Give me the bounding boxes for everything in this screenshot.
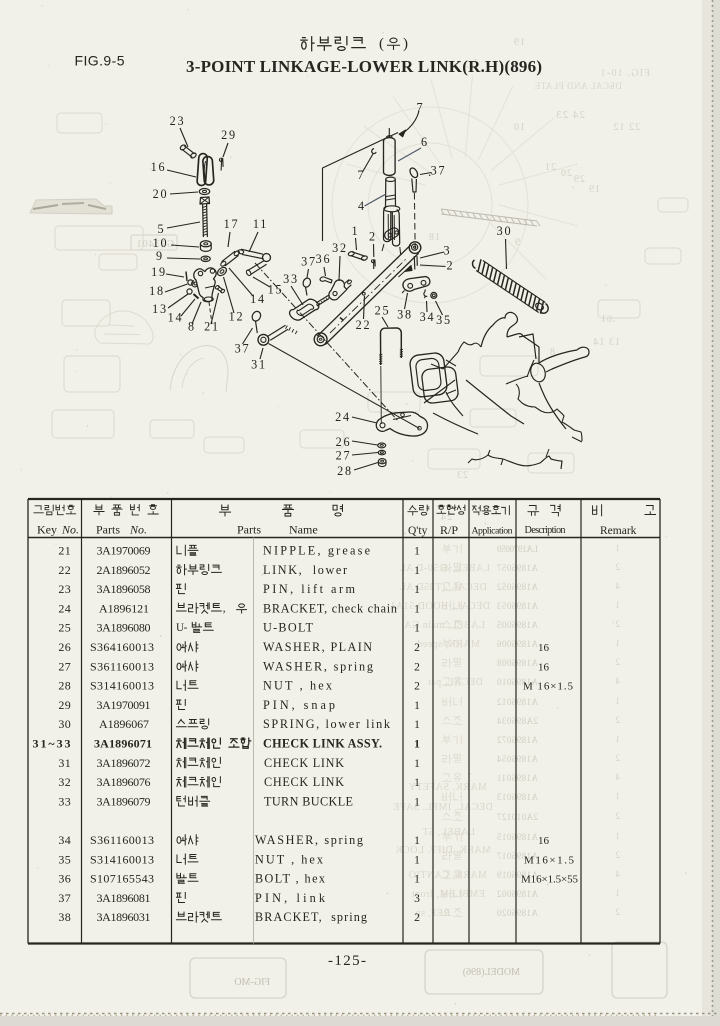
svg-text:2: 2 <box>616 850 621 860</box>
svg-text:18: 18 <box>149 284 165 298</box>
svg-text:S361160013: S361160013 <box>90 659 154 673</box>
svg-text:13 14: 13 14 <box>593 337 621 348</box>
svg-text:Parts: Parts <box>96 523 120 537</box>
svg-text:FIG-MO: FIG-MO <box>234 977 270 988</box>
svg-text:16: 16 <box>151 160 167 174</box>
svg-text:26: 26 <box>336 435 352 449</box>
svg-text:2: 2 <box>414 642 420 654</box>
svg-text:2: 2 <box>414 661 420 673</box>
svg-text:WASHER, PLAIN: WASHER, PLAIN <box>263 640 372 654</box>
svg-text:31~33: 31~33 <box>33 737 71 751</box>
svg-text:6: 6 <box>421 135 429 149</box>
svg-text:2: 2 <box>369 230 377 244</box>
svg-text:U-BOLT: U-BOLT <box>263 621 314 635</box>
svg-text:35: 35 <box>58 852 71 866</box>
svg-text:2A010127: 2A010127 <box>497 812 539 822</box>
svg-text:38: 38 <box>397 308 413 322</box>
svg-text:Name: Name <box>289 523 318 537</box>
svg-text:Key: Key <box>37 523 57 537</box>
svg-text:2A896034: 2A896034 <box>497 716 539 726</box>
svg-text:23: 23 <box>58 582 71 596</box>
svg-text:3A1896072: 3A1896072 <box>97 756 151 770</box>
svg-text:-: - <box>184 622 188 634</box>
svg-text:EMBLEM, front: EMBLEM, front <box>411 889 485 900</box>
svg-text:29: 29 <box>573 174 585 185</box>
svg-text:A1896052: A1896052 <box>497 582 538 592</box>
svg-text:NUT , hex: NUT , hex <box>255 852 323 866</box>
svg-text:14: 14 <box>250 292 266 306</box>
svg-text:2: 2 <box>447 259 455 273</box>
svg-text:DECAL, IMPL. SAFE: DECAL, IMPL. SAFE <box>393 802 493 813</box>
svg-text:A1896121: A1896121 <box>99 601 149 615</box>
svg-text:A1896054: A1896054 <box>497 754 539 764</box>
svg-text:24: 24 <box>335 410 351 424</box>
svg-text:37: 37 <box>301 255 317 269</box>
svg-text:A1896020: A1896020 <box>497 908 539 918</box>
svg-text:22: 22 <box>356 318 372 332</box>
svg-text:9: 9 <box>514 237 520 248</box>
svg-text:4: 4 <box>615 869 620 879</box>
svg-text:1: 1 <box>414 835 420 847</box>
svg-text:S107165543: S107165543 <box>90 872 154 886</box>
svg-text:33: 33 <box>58 794 71 808</box>
svg-text:10: 10 <box>513 122 525 133</box>
svg-text:3: 3 <box>444 244 452 258</box>
svg-text:2: 2 <box>616 715 621 725</box>
svg-text:8: 8 <box>188 320 196 334</box>
svg-text:No.: No. <box>129 523 147 537</box>
svg-text:27: 27 <box>58 659 71 673</box>
svg-text:3A1896058: 3A1896058 <box>97 582 151 596</box>
svg-text:1: 1 <box>616 888 621 898</box>
svg-text:32: 32 <box>58 775 71 789</box>
svg-text:2: 2 <box>616 811 621 821</box>
svg-text:4: 4 <box>615 676 620 686</box>
svg-text:18: 18 <box>428 232 440 243</box>
svg-text:말: 말 <box>453 657 462 669</box>
svg-text:WASHER, spring: WASHER, spring <box>255 833 363 847</box>
svg-text:MARK, CANTIO: MARK, CANTIO <box>408 870 487 881</box>
svg-text:TURN BUCKLE: TURN BUCKLE <box>264 794 353 808</box>
svg-text:20: 20 <box>153 187 169 201</box>
svg-text:(: ( <box>379 36 384 52</box>
svg-text:A1896072: A1896072 <box>497 735 538 745</box>
svg-text:1: 1 <box>616 734 621 744</box>
svg-text:CHECK LINK: CHECK LINK <box>264 756 344 770</box>
svg-text:Q'ty: Q'ty <box>408 525 428 537</box>
svg-text:CHECK LINK: CHECK LINK <box>264 775 344 789</box>
svg-text:61: 61 <box>600 314 612 325</box>
svg-text:S314160013: S314160013 <box>90 679 154 693</box>
svg-text:DECAL, (T35D AL: DECAL, (T35D AL <box>399 582 487 593</box>
svg-text:12: 12 <box>229 310 245 324</box>
svg-text:29: 29 <box>58 698 71 712</box>
svg-text:1: 1 <box>616 638 621 648</box>
svg-text:3A1896076: 3A1896076 <box>97 775 151 789</box>
svg-text:36: 36 <box>58 872 71 886</box>
svg-text:1: 1 <box>414 546 420 558</box>
svg-text:2A1896052: 2A1896052 <box>97 563 151 577</box>
svg-text:LABEL, 5T: LABEL, 5T <box>422 827 475 838</box>
svg-text:3A1970091: 3A1970091 <box>97 698 151 712</box>
svg-text:,: , <box>223 603 226 615</box>
svg-text:MARK, DIFF. LOCK: MARK, DIFF. LOCK <box>395 845 491 856</box>
svg-text:4: 4 <box>615 581 620 591</box>
svg-text:25: 25 <box>375 304 391 318</box>
svg-text:22: 22 <box>58 563 71 577</box>
svg-text:23: 23 <box>170 114 186 128</box>
svg-text:1: 1 <box>414 623 420 635</box>
svg-text:31: 31 <box>251 358 267 372</box>
svg-text:36: 36 <box>316 252 332 266</box>
svg-text:3: 3 <box>414 893 420 905</box>
svg-text:WASHER, spring: WASHER, spring <box>263 659 373 673</box>
svg-text:22 12: 22 12 <box>613 122 641 133</box>
svg-text:R/P: R/P <box>440 523 458 537</box>
svg-text:25: 25 <box>58 621 71 635</box>
svg-text:32: 32 <box>332 241 348 255</box>
svg-text:): ) <box>403 36 408 52</box>
svg-text:10: 10 <box>153 236 169 250</box>
svg-text:SPRING, lower link: SPRING, lower link <box>263 717 391 731</box>
svg-text:37: 37 <box>58 891 71 905</box>
svg-text:1: 1 <box>414 777 420 789</box>
svg-text:A1896006: A1896006 <box>497 639 539 649</box>
svg-text:No.: No. <box>61 523 79 537</box>
svg-text:19: 19 <box>588 184 600 195</box>
svg-text:M16×1.5: M16×1.5 <box>524 854 575 866</box>
svg-text:A1896015: A1896015 <box>497 832 539 842</box>
svg-text:16: 16 <box>538 642 550 654</box>
svg-text:1: 1 <box>414 854 420 866</box>
svg-text:1: 1 <box>616 600 621 610</box>
svg-text:A1896012: A1896012 <box>497 697 538 707</box>
svg-text:1: 1 <box>616 543 621 553</box>
svg-text:14: 14 <box>168 311 184 325</box>
svg-text:38: 38 <box>58 910 71 924</box>
svg-text:11: 11 <box>253 217 268 231</box>
svg-text:20: 20 <box>560 168 572 179</box>
svg-text:37: 37 <box>431 164 447 178</box>
svg-text:28: 28 <box>337 464 353 478</box>
svg-text:17: 17 <box>224 217 240 231</box>
svg-text:37: 37 <box>235 342 251 356</box>
svg-text:21: 21 <box>204 320 220 334</box>
svg-text:Parts: Parts <box>237 523 261 537</box>
svg-text:3A1896080: 3A1896080 <box>97 621 151 635</box>
svg-text:2: 2 <box>616 562 621 572</box>
svg-text:29: 29 <box>221 128 237 142</box>
svg-text:말: 말 <box>453 753 462 765</box>
svg-text:BRACKET, check chain: BRACKET, check chain <box>263 601 397 615</box>
svg-text:2: 2 <box>616 753 621 763</box>
svg-text:7: 7 <box>417 101 425 115</box>
svg-text:S361160013: S361160013 <box>90 833 154 847</box>
svg-text:1: 1 <box>414 700 420 712</box>
svg-text:2: 2 <box>616 657 621 667</box>
svg-text:35: 35 <box>436 313 452 327</box>
svg-text:26: 26 <box>58 640 71 654</box>
svg-text:CHECK LINK ASSY.: CHECK LINK ASSY. <box>263 737 382 751</box>
svg-text:16: 16 <box>538 835 550 847</box>
svg-text:2: 2 <box>616 907 621 917</box>
svg-text:A1896057: A1896057 <box>497 563 539 573</box>
svg-text:3-POINT LINKAGE-LOWER LINK(R.H: 3-POINT LINKAGE-LOWER LINK(R.H)(896) <box>186 57 542 76</box>
svg-text:1: 1 <box>414 584 420 596</box>
svg-text:21: 21 <box>544 162 556 173</box>
svg-text:Description: Description <box>525 525 566 536</box>
svg-text:3A1970069: 3A1970069 <box>97 544 151 558</box>
svg-text:28: 28 <box>58 679 71 693</box>
svg-text:23: 23 <box>456 470 468 481</box>
svg-text:5: 5 <box>158 222 166 236</box>
svg-text:1: 1 <box>616 831 621 841</box>
svg-text:1: 1 <box>414 739 420 751</box>
svg-text:MARK, SAFETY: MARK, SAFETY <box>408 782 487 793</box>
svg-text:DECAL, pat: DECAL, pat <box>427 677 483 688</box>
svg-text:13: 13 <box>152 302 168 316</box>
svg-text:9: 9 <box>156 249 164 263</box>
svg-text:1: 1 <box>352 224 360 238</box>
svg-text:MODEL(896): MODEL(896) <box>463 967 520 978</box>
svg-text:34: 34 <box>420 310 436 324</box>
svg-text:S314160013: S314160013 <box>90 852 154 866</box>
svg-text:1: 1 <box>616 696 621 706</box>
svg-text:M16×1.5×55: M16×1.5×55 <box>521 874 579 886</box>
svg-text:LA1970059: LA1970059 <box>497 544 539 554</box>
svg-text:A1896013: A1896013 <box>497 792 539 802</box>
svg-text:30: 30 <box>58 717 71 731</box>
svg-text:1: 1 <box>616 791 621 801</box>
svg-text:3A1896081: 3A1896081 <box>97 891 151 905</box>
svg-text:2: 2 <box>616 619 621 629</box>
svg-text:1: 1 <box>414 603 420 615</box>
svg-text:3A1896079: 3A1896079 <box>97 794 151 808</box>
svg-text:PIN, snap: PIN, snap <box>263 698 335 712</box>
svg-text:31: 31 <box>58 756 71 770</box>
svg-text:1: 1 <box>414 719 420 731</box>
svg-text:2: 2 <box>414 681 420 693</box>
svg-text:19: 19 <box>513 37 525 48</box>
svg-text:S364160013: S364160013 <box>90 640 154 654</box>
svg-text:BRACKET, spring: BRACKET, spring <box>255 910 367 924</box>
svg-text:MARK, speed: MARK, speed <box>417 639 480 650</box>
svg-text:34: 34 <box>58 833 71 847</box>
svg-text:PIN, link: PIN, link <box>255 891 326 905</box>
svg-text:Remark: Remark <box>600 525 637 537</box>
svg-text:15: 15 <box>268 283 284 297</box>
svg-text:A1896011: A1896011 <box>497 773 538 783</box>
svg-text:A1896067: A1896067 <box>99 717 149 731</box>
svg-text:Application: Application <box>472 526 513 537</box>
svg-text:4: 4 <box>615 772 620 782</box>
svg-text:1: 1 <box>414 565 420 577</box>
svg-text:FIG. 10-1: FIG. 10-1 <box>600 68 650 79</box>
svg-text:FIG.9-5: FIG.9-5 <box>75 53 125 69</box>
svg-text:27: 27 <box>336 449 352 463</box>
svg-text:16: 16 <box>538 661 550 673</box>
svg-text:A1896008: A1896008 <box>497 658 539 668</box>
svg-text:1: 1 <box>414 758 420 770</box>
svg-text:A1896053: A1896053 <box>497 601 539 611</box>
svg-text:2: 2 <box>414 912 420 924</box>
svg-text:24 23: 24 23 <box>555 109 585 121</box>
svg-text:LABEL, 4150-D AL: LABEL, 4150-D AL <box>399 563 490 574</box>
svg-text:7: 7 <box>358 168 366 182</box>
svg-text:3A1896031: 3A1896031 <box>97 910 151 924</box>
svg-text:33: 33 <box>283 272 299 286</box>
svg-text:A1896005: A1896005 <box>497 620 539 630</box>
svg-text:1: 1 <box>414 796 420 808</box>
svg-text:4: 4 <box>358 199 366 213</box>
svg-text:DECAL AND PLATE: DECAL AND PLATE <box>534 81 622 91</box>
svg-text:M 16×1.5: M 16×1.5 <box>523 681 574 693</box>
svg-text:A1896002: A1896002 <box>497 889 538 899</box>
svg-text:19: 19 <box>151 265 167 279</box>
svg-text:30: 30 <box>497 224 513 238</box>
svg-text:3A1896071: 3A1896071 <box>94 737 152 751</box>
svg-text:24: 24 <box>58 601 71 615</box>
svg-text:-125-: -125- <box>328 953 366 969</box>
svg-text:DECAL, HOOD 51A1: DECAL, HOOD 51A1 <box>390 601 490 612</box>
svg-text:1: 1 <box>414 874 420 886</box>
svg-text:21: 21 <box>58 544 71 558</box>
